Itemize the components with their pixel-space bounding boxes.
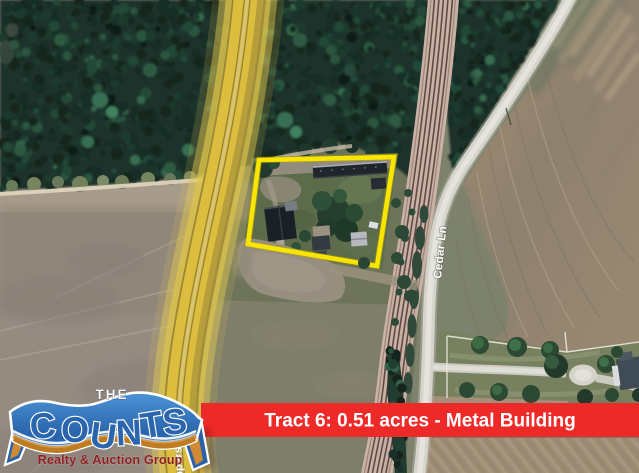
svg-text:O: O [60, 409, 89, 451]
svg-text:Tract 6: 0.51 acres - Metal Bu: Tract 6: 0.51 acres - Metal Building [264, 411, 576, 432]
svg-text:S: S [160, 400, 189, 444]
svg-text:C: C [28, 404, 57, 447]
svg-text:Realty & Auction Group: Realty & Auction Group [38, 453, 183, 467]
svg-text:THE: THE [96, 387, 129, 402]
